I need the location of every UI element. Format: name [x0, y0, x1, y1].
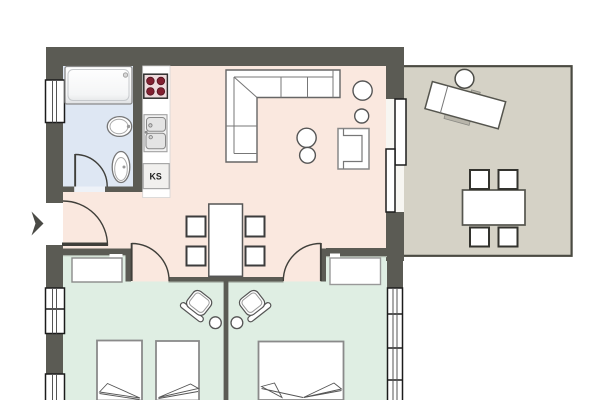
svg-text:KS: KS: [149, 172, 161, 182]
